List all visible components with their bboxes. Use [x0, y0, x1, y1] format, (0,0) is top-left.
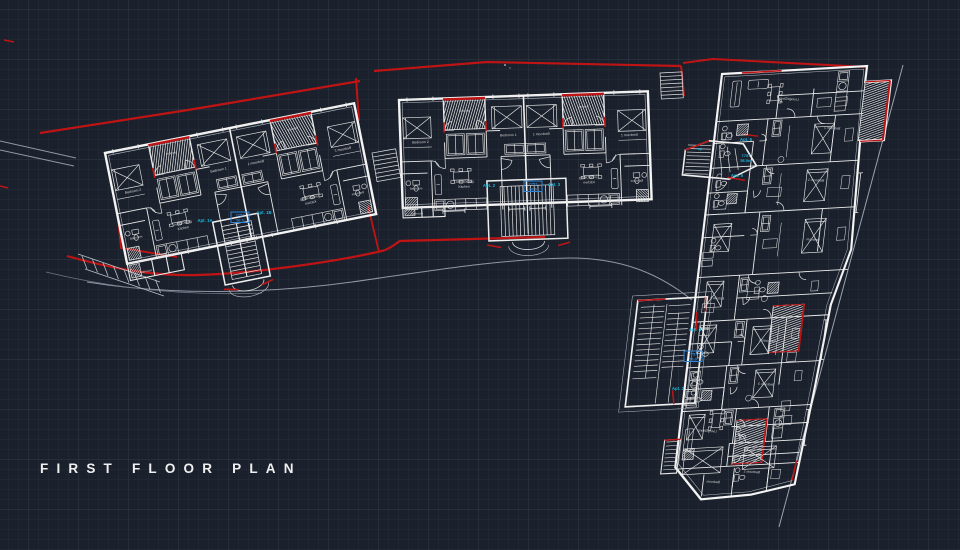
svg-text:Bathroom: Bathroom: [630, 179, 643, 183]
svg-text:Balcony: Balcony: [459, 109, 470, 113]
svg-text:Apt. 2: Apt. 2: [483, 183, 496, 188]
svg-text:Apt. 1B: Apt. 1B: [256, 210, 271, 215]
svg-text:Apt. 6: Apt. 6: [740, 137, 753, 142]
svg-text:7757: 7757: [236, 214, 244, 218]
svg-text:Apt. 1A: Apt. 1A: [197, 218, 213, 223]
svg-text:Living/Dining: Living/Dining: [454, 179, 474, 184]
svg-text:Apt. 4: Apt. 4: [689, 327, 702, 332]
svg-text:Kitchen: Kitchen: [458, 185, 470, 189]
svg-text:Bedroom 1: Bedroom 1: [533, 132, 550, 137]
svg-text:Bathroom: Bathroom: [410, 186, 423, 190]
svg-text:Balcony: Balcony: [577, 104, 588, 108]
svg-text:56.0: 56.0: [689, 357, 696, 361]
svg-text:Apt. 5: Apt. 5: [731, 173, 744, 178]
svg-text:Living/Dining: Living/Dining: [579, 175, 599, 180]
svg-text:Ensuite 2: Ensuite 2: [710, 296, 725, 301]
svg-text:7757: 7757: [529, 183, 537, 187]
svg-text:Bedroom 2: Bedroom 2: [412, 140, 429, 145]
svg-text:Bedroom 2: Bedroom 2: [621, 133, 638, 138]
svg-text:7757: 7757: [689, 353, 697, 357]
svg-text:Kitchen: Kitchen: [583, 180, 595, 184]
svg-text:56.0: 56.0: [529, 187, 536, 191]
svg-text:Bedroom 1: Bedroom 1: [500, 133, 517, 138]
svg-text:Apt. 3: Apt. 3: [672, 386, 685, 391]
svg-text:56.0: 56.0: [236, 218, 243, 222]
svg-text:Bedroom: Bedroom: [706, 480, 720, 485]
svg-text:Bedroom: Bedroom: [806, 237, 820, 242]
svg-text:56.0m: 56.0m: [740, 158, 752, 163]
svg-text:up: up: [698, 147, 702, 151]
svg-text:Apt. 3: Apt. 3: [548, 182, 561, 187]
svg-text:FIRST FLOOR PLAN: FIRST FLOOR PLAN: [40, 461, 302, 476]
